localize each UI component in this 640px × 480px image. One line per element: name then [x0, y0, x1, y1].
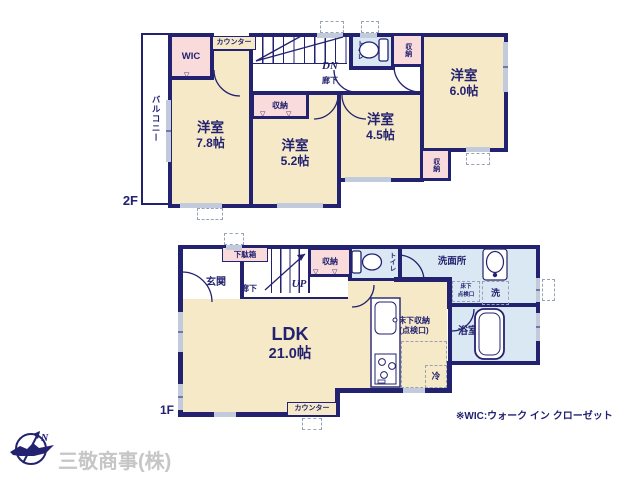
- floor-1-label: 1F: [146, 403, 174, 417]
- fridge-space: 冷: [425, 365, 447, 388]
- vent-box: [224, 233, 244, 245]
- closet-door-mark: ▽: [332, 269, 337, 276]
- shoe-cabinet-label: 下駄箱: [234, 250, 257, 259]
- fridge-label: 冷: [432, 371, 441, 381]
- washer-label: 洗: [491, 288, 500, 299]
- window-marker: [226, 245, 242, 250]
- vent-box: [302, 418, 322, 430]
- wall: [335, 388, 452, 393]
- closet-door-mark: ▽: [313, 269, 318, 276]
- window-marker: [178, 384, 183, 410]
- wall: [447, 361, 452, 393]
- window-marker: [536, 313, 540, 341]
- wic-note: ※WIC:ウォーク イン クローゼット: [456, 411, 626, 423]
- bathroom-label: 浴室: [451, 326, 485, 338]
- ldk-label: LDK 21.0帖: [235, 324, 345, 363]
- outer-notch: [340, 393, 352, 417]
- window-marker: [536, 278, 540, 302]
- underfloor-hatch: 床下 点検口: [452, 281, 480, 302]
- counter-1f-label: カウンター: [295, 405, 330, 413]
- company-logo-text: 三敬商事(株): [58, 445, 188, 474]
- washer-space: 洗: [482, 281, 509, 305]
- counter-1f: カウンター: [287, 402, 337, 416]
- underfloor-storage-label: 床下収納 (点検口): [388, 316, 440, 335]
- washroom-label: 洗面所: [424, 256, 480, 267]
- floor-1-plan: トイレ 収納 下駄箱 カウンター 床下 点検口: [0, 0, 640, 480]
- floor-plan: バルコニー WIC トイレ 収納 収納 収納 カウンター: [0, 0, 640, 480]
- window-marker: [403, 388, 425, 393]
- entrance-label: 玄関: [198, 277, 234, 289]
- storage-label: 収納: [322, 257, 338, 267]
- stairs-up-label: UP: [286, 278, 312, 291]
- vent-box: [542, 279, 555, 301]
- toilet-1f-label: トイレ: [387, 252, 395, 272]
- hallway-1f-label: 廊下: [236, 284, 262, 294]
- window-marker: [214, 412, 236, 417]
- window-marker: [178, 312, 183, 352]
- wall: [394, 277, 452, 282]
